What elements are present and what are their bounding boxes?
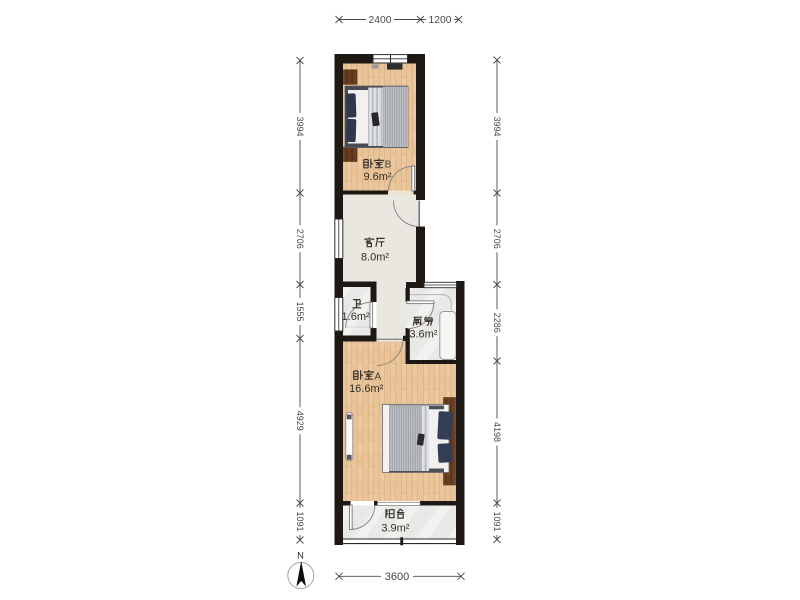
svg-text:1555: 1555 [295,301,305,321]
svg-text:1091: 1091 [492,511,502,531]
svg-text:N: N [297,551,304,561]
svg-text:9.6m²: 9.6m² [363,171,391,183]
svg-text:3.6m²: 3.6m² [409,329,437,341]
svg-text:1091: 1091 [295,511,305,531]
svg-text:3994: 3994 [492,116,502,136]
svg-text:16.6m²: 16.6m² [349,383,384,395]
svg-text:3994: 3994 [295,116,305,136]
svg-text:2706: 2706 [492,229,502,249]
svg-text:3600: 3600 [385,571,409,583]
svg-text:2400: 2400 [369,15,392,26]
svg-text:2286: 2286 [492,313,502,333]
svg-text:B: B [385,160,392,171]
svg-text:A: A [375,371,382,382]
svg-text:1.6m²: 1.6m² [342,311,370,323]
svg-text:4929: 4929 [295,411,305,431]
svg-text:1200: 1200 [429,15,452,26]
svg-text:4198: 4198 [492,422,502,442]
svg-text:3.9m²: 3.9m² [381,522,409,534]
svg-text:2706: 2706 [295,229,305,249]
svg-text:8.0m²: 8.0m² [361,251,389,263]
